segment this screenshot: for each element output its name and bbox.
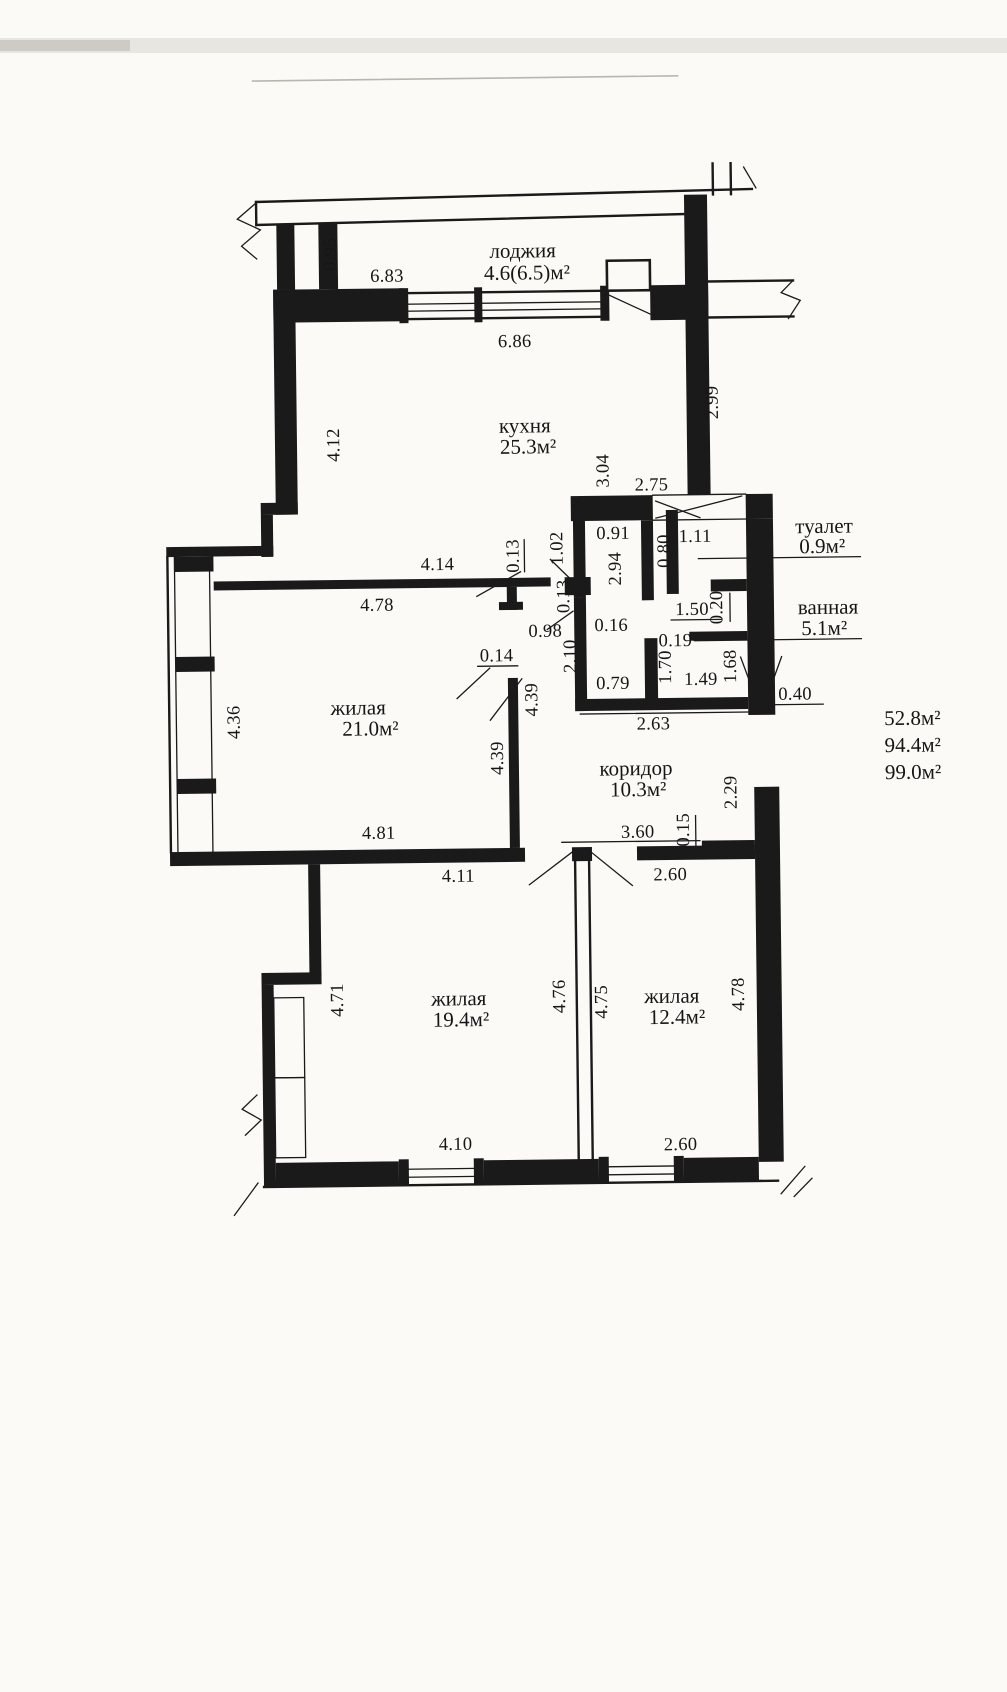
scan-faint-line	[253, 76, 678, 81]
area-totals: 52.8м² 94.4м² 99.0м²	[884, 705, 941, 784]
dim-0-40: 0.40	[778, 685, 812, 705]
dim-4-11: 4.11	[442, 867, 475, 887]
scanned-floor-plan-page: лоджия 4.6(6.5)м² кухня 25.3м² туалет 0.…	[0, 0, 1007, 1692]
dim-2-99: 2.99	[703, 386, 723, 420]
dim-0-95: 0.95	[321, 237, 341, 271]
dim-6-83: 6.83	[370, 266, 404, 286]
dim-0-15: 0.15	[674, 813, 694, 847]
room-area-bathroom: 5.1м²	[801, 616, 847, 641]
dim-0-20: 0.20	[707, 590, 727, 624]
dim-1-68: 1.68	[721, 649, 741, 683]
dim-0-98: 0.98	[528, 622, 562, 642]
total-apartment-area: 94.4м²	[884, 732, 941, 757]
dim-4-75: 4.75	[592, 985, 612, 1019]
dim-4-12: 4.12	[324, 428, 344, 462]
dim-4-76: 4.76	[550, 979, 570, 1013]
dim-4-39-b: 4.39	[488, 741, 508, 775]
room-area-kitchen: 25.3м²	[500, 434, 557, 459]
dim-4-71: 4.71	[328, 983, 348, 1017]
dim-0-91: 0.91	[596, 524, 630, 544]
dim-0-13-low: 0.13	[554, 579, 574, 613]
room-label-loggia: лоджия	[489, 238, 556, 263]
dim-4-78-right: 4.78	[729, 977, 749, 1011]
balcony-door-unit	[607, 260, 650, 291]
dim-2-94: 2.94	[606, 552, 626, 586]
dim-0-13-top: 0.13	[503, 539, 523, 573]
dim-0-79: 0.79	[596, 674, 630, 694]
dim-4-36: 4.36	[224, 705, 244, 739]
dim-2-63: 2.63	[637, 714, 671, 734]
dimension-labels: 0.95 6.83 6.86 4.12 2.99 3.04 2.75 4.14 …	[219, 231, 818, 1160]
floor-plan-drawing: лоджия 4.6(6.5)м² кухня 25.3м² туалет 0.…	[0, 0, 1007, 1692]
dim-4-10: 4.10	[439, 1135, 473, 1155]
room-area-loggia: 4.6(6.5)м²	[484, 260, 570, 285]
dim-3-04: 3.04	[593, 454, 613, 488]
dim-6-86: 6.86	[498, 332, 532, 352]
dim-4-39-a: 4.39	[522, 683, 542, 717]
dim-2-60-bottom: 2.60	[664, 1135, 698, 1155]
dim-1-70: 1.70	[656, 650, 676, 684]
dim-2-60-corridor: 2.60	[653, 865, 687, 885]
dim-4-78-room: 4.78	[360, 596, 394, 616]
dim-1-02: 1.02	[547, 531, 567, 565]
dim-2-75: 2.75	[635, 475, 669, 495]
dim-4-14: 4.14	[421, 555, 455, 575]
dim-4-81: 4.81	[362, 824, 396, 844]
dim-1-50: 1.50	[675, 600, 709, 620]
dim-2-10: 2.10	[561, 639, 581, 673]
room-area-living3: 12.4м²	[649, 1004, 706, 1029]
total-living-area: 52.8м²	[884, 705, 941, 730]
dim-0-16: 0.16	[594, 616, 628, 636]
room-area-living1: 21.0м²	[342, 716, 399, 741]
total-overall-area: 99.0м²	[885, 759, 942, 784]
room-area-corridor: 10.3м²	[610, 777, 667, 802]
dim-0-80: 0.80	[654, 534, 674, 568]
dim-1-11: 1.11	[679, 527, 712, 547]
dim-3-60: 3.60	[621, 822, 655, 842]
dim-0-14: 0.14	[480, 646, 514, 666]
room-area-toilet: 0.9м²	[799, 534, 845, 559]
dim-2-29: 2.29	[721, 775, 741, 809]
dim-1-49: 1.49	[684, 670, 718, 690]
room-area-living2: 19.4м²	[433, 1007, 490, 1032]
dim-0-19: 0.19	[659, 631, 693, 651]
